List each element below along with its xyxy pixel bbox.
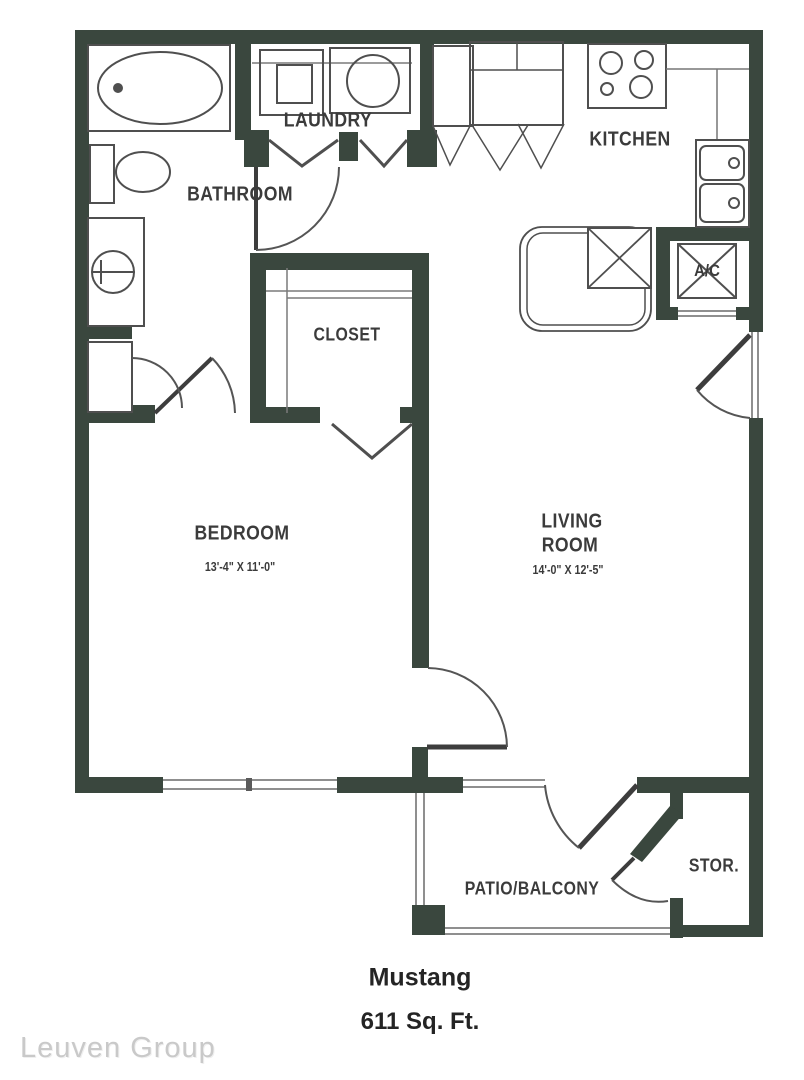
wall-bath-laundry [235, 43, 251, 140]
stor-wall-angled [630, 806, 683, 862]
window-mullion [246, 778, 252, 791]
living-room-dimensions: 14'-0" X 12'-5" [533, 563, 604, 577]
ac-jamb-right [736, 307, 763, 320]
bathroom-door-swing [256, 167, 339, 250]
wall-bedroom-living [412, 253, 429, 668]
floor-plan-page: BATHROOM LAUNDRY KITCHEN CLOSET BEDROOM … [0, 0, 804, 1080]
watermark-text: Leuven Group [20, 1032, 216, 1065]
patio-label: PATIO/BALCONY [465, 880, 600, 899]
burner-3 [601, 83, 613, 95]
refrigerator [433, 46, 473, 126]
laundry-label: LAUNDRY [284, 111, 372, 132]
storage-door-leaf [612, 858, 634, 880]
interior-walls [75, 43, 763, 938]
bedroom-door-swing [428, 668, 507, 747]
wall-closet-bottom [250, 407, 320, 423]
patio-post-left [412, 905, 445, 935]
storage-label: STOR. [689, 857, 739, 876]
wall-closet-top [250, 253, 429, 270]
toilet-bowl [116, 152, 170, 192]
ac-label: A/C [694, 262, 720, 280]
laundry-jamb-mid [339, 132, 358, 161]
laundry-bifold-left [269, 140, 338, 166]
bathroom-fixtures [88, 45, 230, 412]
patio-post-right [670, 898, 683, 938]
patio-rail-bottom [445, 928, 670, 934]
bath-bedroom-door-leaf [155, 358, 212, 413]
closet-bifold-door [332, 424, 412, 458]
laundry-bifold-right [360, 140, 407, 166]
entry-door-leaf [697, 335, 750, 390]
bedroom-label: BEDROOM [195, 524, 290, 545]
wall-laundry-kitchen [420, 43, 434, 141]
wall-bath-right [250, 253, 266, 423]
ac-jamb-left [656, 307, 678, 320]
patio-door-leaf [579, 785, 637, 848]
linen-door-swing [132, 358, 182, 408]
wall-bottom-left [75, 777, 163, 793]
kitchen-label: KITCHEN [589, 130, 670, 151]
wall-bottom-right [637, 777, 763, 793]
wall-right-upper [749, 30, 763, 332]
burner-1 [600, 52, 622, 74]
sink-drain-1 [729, 158, 739, 168]
stove [588, 44, 666, 108]
floor-plan-drawing [0, 0, 804, 1080]
wall-top [75, 30, 763, 44]
vanity-linen-divider [88, 327, 132, 339]
plan-name: Mustang [369, 964, 472, 993]
toilet-tank [90, 145, 114, 203]
wall-bottom-mid [337, 777, 463, 793]
bedroom-dimensions: 13'-4" X 11'-0" [205, 560, 275, 574]
wall-right-lower [749, 418, 763, 937]
fridge-door-swing [433, 126, 470, 165]
patio-door-swing [545, 785, 579, 848]
wall-bedroom-door-jamb [412, 747, 428, 793]
laundry-jamb-left [244, 130, 269, 167]
laundry-appliances [252, 48, 412, 115]
wall-ac-top [656, 227, 763, 241]
cabinet-divider-lines [470, 42, 563, 70]
storage-door-swing [612, 880, 668, 902]
cabinet-door-swing-1 [472, 125, 528, 170]
stor-wall-bottom [683, 925, 763, 937]
bath-bedroom-door-swing [212, 358, 235, 413]
plan-area: 611 Sq. Ft. [361, 1008, 480, 1036]
linen-closet [88, 342, 132, 412]
sink-drain-2 [729, 198, 739, 208]
burner-4 [630, 76, 652, 98]
washer-door [277, 65, 312, 103]
wall-ac-left [656, 227, 670, 320]
washer [260, 50, 323, 115]
burner-2 [635, 51, 653, 69]
living-room-label-line1: LIVING [541, 512, 602, 533]
patio-door-sidelight [463, 780, 545, 787]
sink-basin-1 [700, 146, 744, 180]
entry-threshold [752, 332, 758, 418]
bathroom-label: BATHROOM [187, 185, 293, 206]
ac-louver-door [678, 311, 736, 316]
closet-label: CLOSET [314, 326, 381, 345]
bathtub-drain [114, 84, 122, 92]
patio-rail-left [416, 793, 424, 905]
living-room-label-line2: ROOM [542, 536, 599, 557]
counter-edge-lines [666, 69, 749, 140]
entry-door-swing [697, 390, 750, 418]
sink-basin-2 [700, 184, 744, 222]
